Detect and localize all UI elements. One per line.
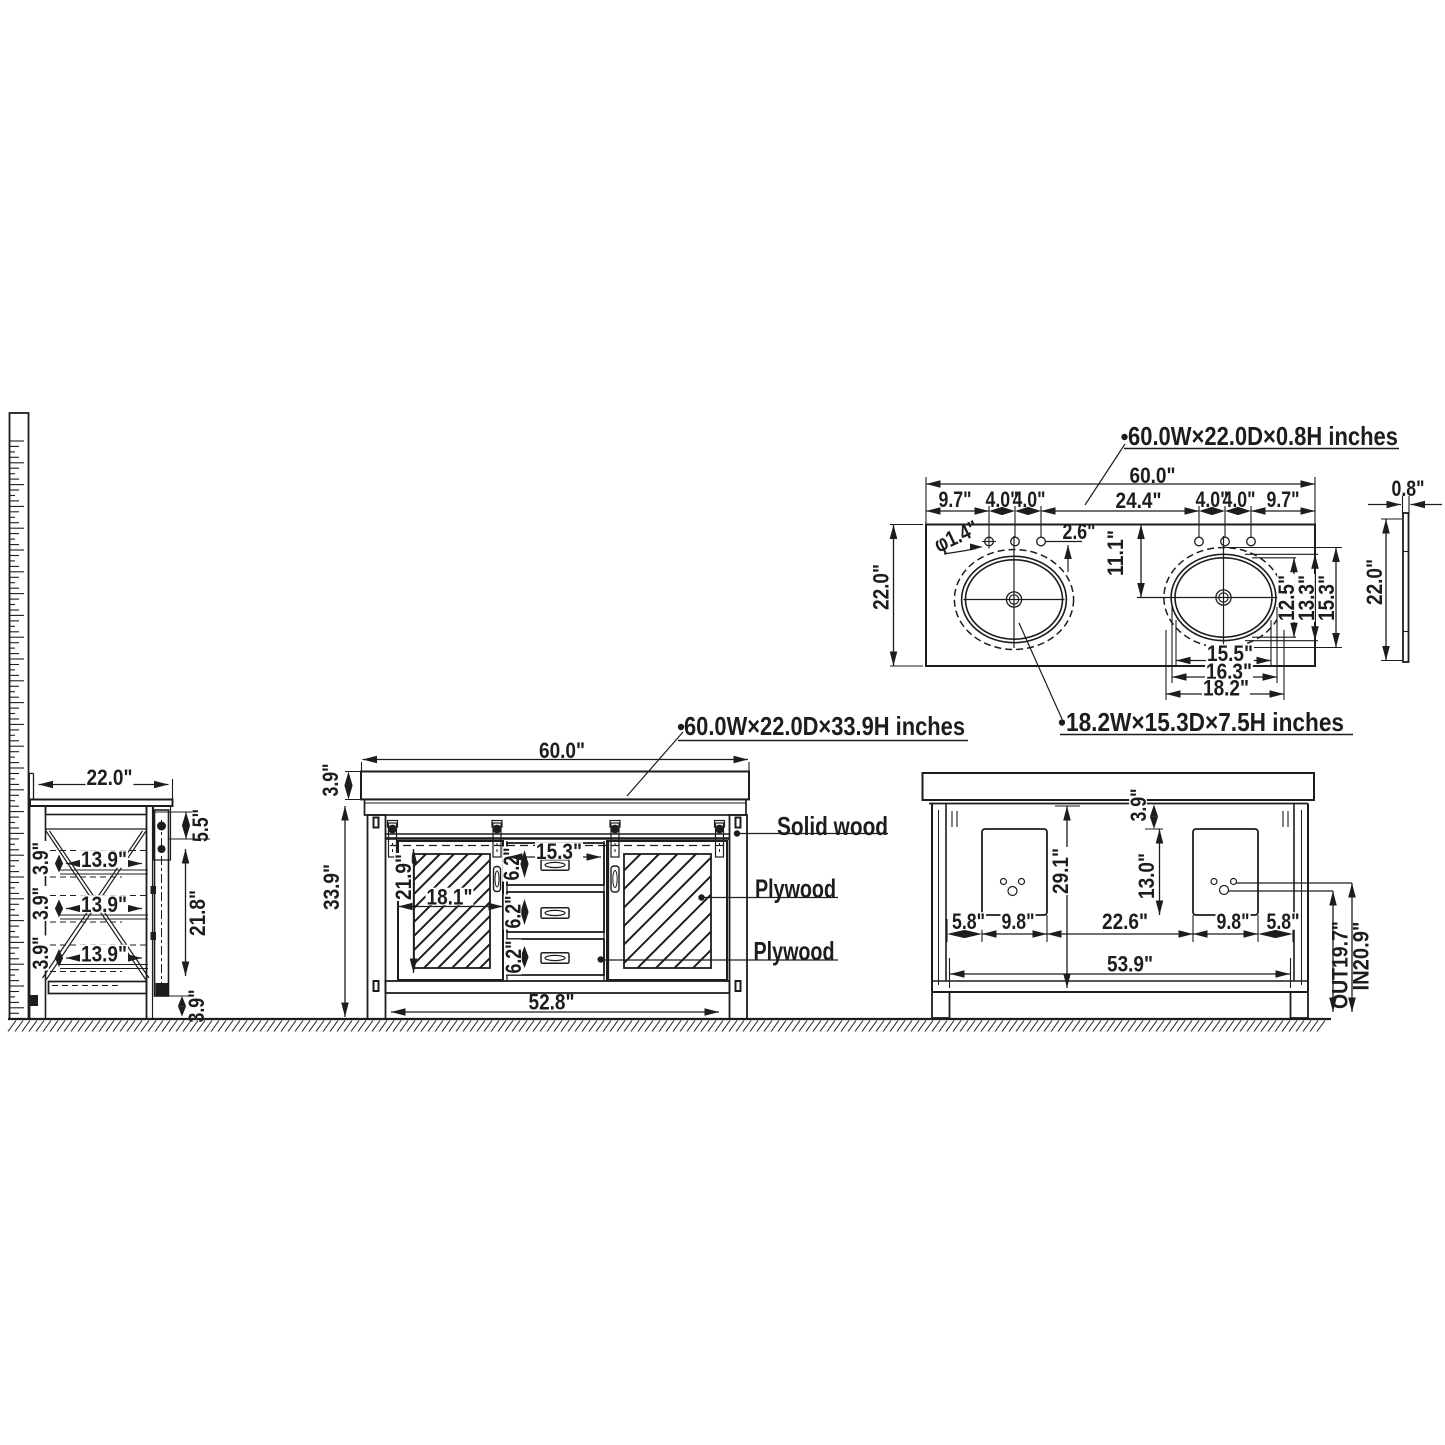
svg-text:24.4": 24.4" [1116,488,1162,513]
svg-text:6.2": 6.2" [500,896,525,929]
svg-text:3.9": 3.9" [28,937,53,970]
svg-text:6.2": 6.2" [501,941,526,974]
svg-text:21.8": 21.8" [185,890,210,936]
svg-text:3.9": 3.9" [28,842,53,875]
svg-text:Plywood: Plywood [754,936,835,966]
svg-text:3.9": 3.9" [28,887,53,920]
svg-text:0.8": 0.8" [1392,476,1425,501]
svg-text:18.2W×15.3D×7.5H inches: 18.2W×15.3D×7.5H inches [1066,707,1344,737]
svg-text:22.6": 22.6" [1102,909,1148,934]
svg-text:33.9": 33.9" [319,864,344,910]
svg-text:5.8": 5.8" [1267,909,1300,934]
svg-text:11.1": 11.1" [1103,530,1128,576]
svg-text:5.8": 5.8" [952,909,985,934]
svg-text:OUT19.7": OUT19.7" [1327,921,1352,1009]
svg-text:9.7": 9.7" [939,487,972,512]
svg-text:3.9": 3.9" [184,990,209,1023]
svg-text:53.9": 53.9" [1107,951,1153,976]
svg-text:13.9": 13.9" [81,941,127,966]
svg-text:5.5": 5.5" [188,809,213,842]
svg-text:15.3": 15.3" [536,839,582,864]
svg-text:3.9": 3.9" [318,764,343,797]
svg-text:15.3": 15.3" [1314,575,1339,621]
svg-text:9.8": 9.8" [1217,909,1250,934]
svg-text:Solid wood: Solid wood [777,811,888,841]
svg-text:18.1": 18.1" [427,884,473,909]
svg-text:6.2": 6.2" [499,848,524,881]
svg-text:2.6": 2.6" [1063,519,1096,544]
svg-text:3.9": 3.9" [1126,789,1151,822]
svg-text:9.7": 9.7" [1267,487,1300,512]
svg-text:13.0": 13.0" [1134,853,1159,899]
svg-text:9.8": 9.8" [1002,909,1035,934]
svg-text:22.0": 22.0" [87,765,133,790]
svg-text:22.0": 22.0" [868,564,893,610]
svg-text:52.8": 52.8" [529,989,575,1014]
svg-text:21.9": 21.9" [391,854,416,900]
svg-text:Plywood: Plywood [755,874,836,904]
svg-text:29.1": 29.1" [1048,848,1073,894]
svg-text:18.2": 18.2" [1203,675,1249,700]
svg-text:13.9": 13.9" [81,892,127,917]
svg-text:60.0W×22.0D×0.8H inches: 60.0W×22.0D×0.8H inches [1128,421,1398,451]
svg-text:13.9": 13.9" [81,847,127,872]
svg-text:22.0": 22.0" [1362,559,1387,605]
svg-text:60.0W×22.0D×33.9H inches: 60.0W×22.0D×33.9H inches [684,711,965,741]
